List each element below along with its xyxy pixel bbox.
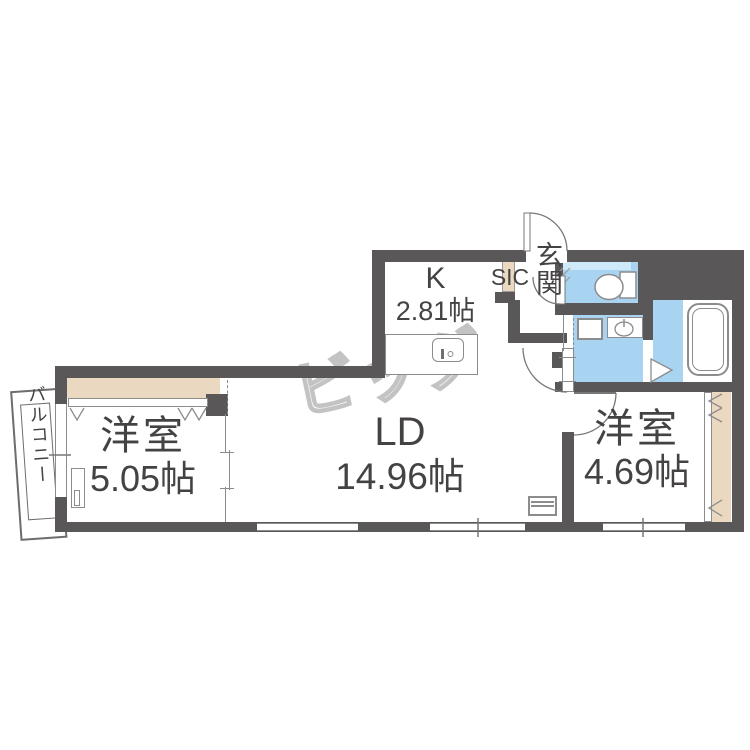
wall-mass-top-right <box>638 250 744 300</box>
washroom-left-wall-line <box>563 315 564 351</box>
wall-bedroom-top <box>555 382 744 392</box>
wall-bath-washroom-divider <box>643 315 653 340</box>
window-bottom-ld-1 <box>257 523 358 531</box>
room-area-ld: 14.96帖 <box>300 456 500 498</box>
sliding-door-panel-1 <box>225 414 226 453</box>
wall-left-upper <box>55 378 67 406</box>
wall-hall-horizontal <box>520 333 567 343</box>
room-name-sic: SIC <box>491 264 529 290</box>
room-name-western-left: 洋室 <box>62 413 224 459</box>
washing-machine-pan <box>577 318 603 340</box>
room-name-ld: LD <box>300 408 500 456</box>
room-name-kitchen: K <box>383 262 488 296</box>
opening-dashed-marker <box>227 380 228 414</box>
wall-toilet-right <box>638 258 653 304</box>
wall-top-left-section <box>55 366 385 378</box>
sliding-door-panel-2 <box>229 450 230 490</box>
window-bottom-bedroom <box>603 523 685 531</box>
room-label-western-right: 洋室 4.69帖 <box>558 406 716 492</box>
hall-door-leaf <box>562 348 574 392</box>
room-label-kitchen: K 2.81帖 <box>383 262 488 326</box>
wall-top-kitchen <box>372 250 526 262</box>
room-area-kitchen: 2.81帖 <box>383 296 488 326</box>
vanity-sink-counter <box>607 317 643 338</box>
washroom-dashed-marker <box>573 318 574 350</box>
room-label-ld: LD 14.96帖 <box>300 408 500 498</box>
room-name-western-right: 洋室 <box>558 406 716 452</box>
panel-heater-ld-vent-line-2 <box>531 505 554 507</box>
closet-left <box>65 378 220 398</box>
room-area-western-left: 5.05帖 <box>62 459 224 499</box>
wall-sic-block <box>495 292 515 303</box>
washroom-door-tick-2 <box>559 381 576 382</box>
washroom-door-tick-1 <box>559 357 576 358</box>
bathtub-inner <box>692 308 724 371</box>
wall-hall-stub <box>552 352 562 368</box>
room-label-entrance: 玄関 <box>528 241 567 301</box>
wall-toilet-bottom <box>555 303 653 315</box>
window-bottom-ld-2 <box>430 523 525 531</box>
room-area-western-right: 4.69帖 <box>558 452 716 492</box>
kitchen-sink <box>432 338 464 362</box>
bathroom-floor <box>653 297 683 382</box>
sliding-door-panel-3 <box>225 487 226 522</box>
closet-left-door-track <box>68 398 208 407</box>
wall-hall-vertical <box>508 300 520 343</box>
room-label-western-left: 洋室 5.05帖 <box>62 413 224 499</box>
panel-heater-ld-vent-line-1 <box>531 501 554 503</box>
floorplan: ビッグ <box>0 0 750 750</box>
